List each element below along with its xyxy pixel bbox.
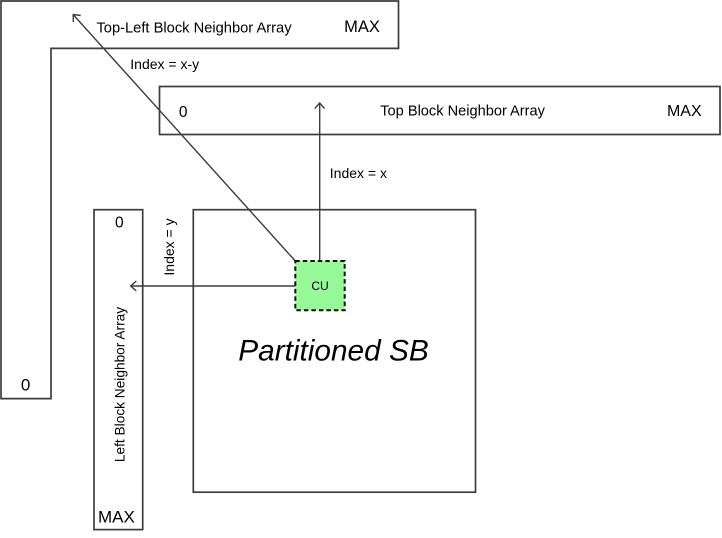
svg-text:0: 0	[115, 215, 124, 232]
svg-text:Top-Left Block Neighbor Array: Top-Left Block Neighbor Array	[96, 21, 292, 37]
svg-text:Index = x: Index = x	[330, 165, 387, 181]
svg-text:MAX: MAX	[98, 507, 135, 526]
svg-text:CU: CU	[311, 279, 328, 293]
svg-text:Partitioned SB: Partitioned SB	[238, 335, 428, 368]
svg-text:MAX: MAX	[667, 103, 702, 120]
svg-text:MAX: MAX	[344, 18, 380, 36]
svg-text:0: 0	[21, 376, 30, 395]
svg-text:0: 0	[179, 104, 188, 121]
svg-text:Left Block Neighbor Array: Left Block Neighbor Array	[113, 307, 128, 462]
svg-text:Index = x-y: Index = x-y	[130, 56, 199, 72]
svg-text:Index = y: Index = y	[161, 218, 177, 275]
svg-text:Top Block Neighbor Array: Top Block Neighbor Array	[380, 103, 545, 119]
